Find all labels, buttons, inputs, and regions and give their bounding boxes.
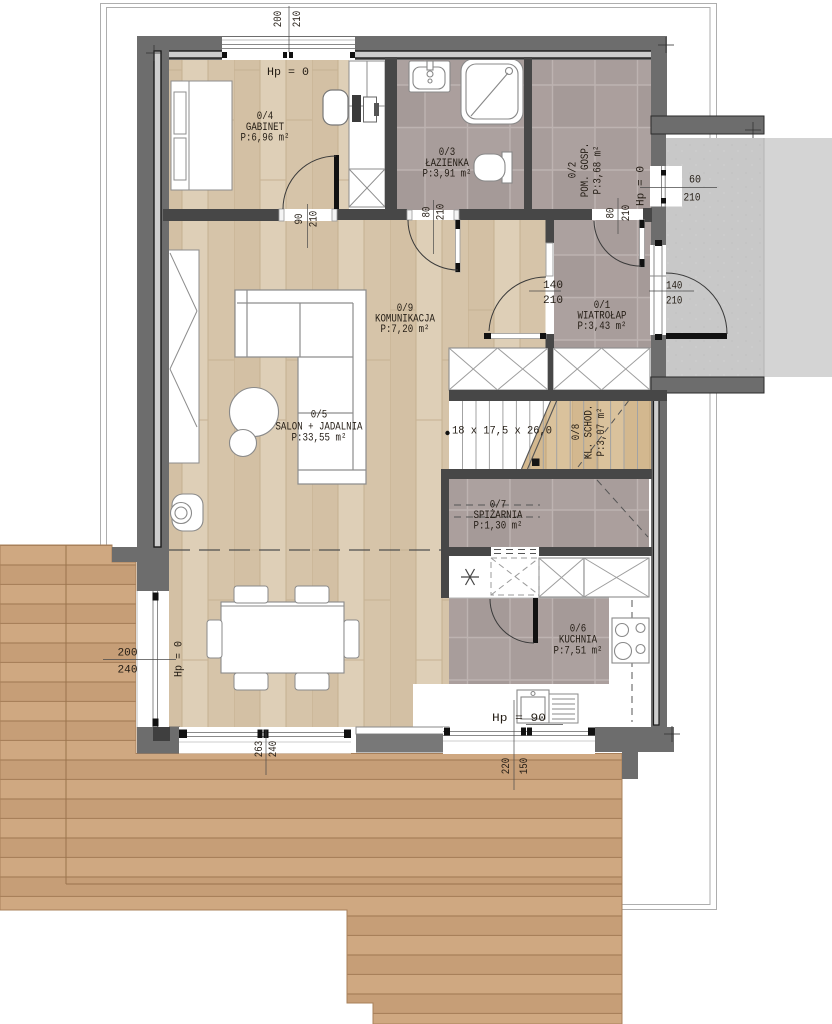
svg-text:240: 240 xyxy=(118,665,138,677)
svg-text:240: 240 xyxy=(268,741,280,757)
svg-text:Hp = 90: Hp = 90 xyxy=(492,713,546,725)
svg-text:P:7,51 m²: P:7,51 m² xyxy=(554,646,603,658)
svg-text:P:7,20 m²: P:7,20 m² xyxy=(381,324,430,336)
svg-text:POM. GOSP.: POM. GOSP. xyxy=(580,143,592,198)
svg-text:200: 200 xyxy=(273,11,285,27)
svg-text:80: 80 xyxy=(422,207,434,218)
svg-text:220: 220 xyxy=(501,758,513,774)
svg-text:210: 210 xyxy=(292,11,304,27)
svg-text:Hp = 0: Hp = 0 xyxy=(636,166,648,206)
svg-text:210: 210 xyxy=(309,211,321,227)
svg-text:150: 150 xyxy=(519,758,531,774)
svg-text:P:6,96 m²: P:6,96 m² xyxy=(241,133,290,145)
svg-text:18 x 17,5 x 26,0: 18 x 17,5 x 26,0 xyxy=(452,426,552,438)
svg-text:P:3,43 m²: P:3,43 m² xyxy=(578,321,627,333)
svg-text:P:3,07 m²: P:3,07 m² xyxy=(596,408,608,457)
svg-text:263: 263 xyxy=(254,741,266,757)
svg-text:210: 210 xyxy=(666,296,682,308)
svg-text:0/2: 0/2 xyxy=(568,162,580,178)
svg-text:Hp = 0: Hp = 0 xyxy=(267,67,309,79)
svg-text:90: 90 xyxy=(294,214,306,225)
svg-text:P:33,55 m²: P:33,55 m² xyxy=(292,433,347,445)
svg-text:80: 80 xyxy=(606,208,618,219)
svg-text:60: 60 xyxy=(689,175,701,187)
svg-text:0/8: 0/8 xyxy=(571,424,583,440)
svg-text:200: 200 xyxy=(118,648,138,660)
svg-text:0/5: 0/5 xyxy=(311,410,327,422)
svg-text:210: 210 xyxy=(621,205,633,221)
svg-text:210: 210 xyxy=(543,295,563,307)
svg-text:210: 210 xyxy=(684,193,701,205)
svg-text:P:3,91 m²: P:3,91 m² xyxy=(423,169,472,181)
svg-text:P:3,68 m²: P:3,68 m² xyxy=(593,146,605,195)
svg-text:KL. SCHOD.: KL. SCHOD. xyxy=(584,405,596,460)
svg-text:210: 210 xyxy=(436,204,448,220)
svg-text:P:1,30 m²: P:1,30 m² xyxy=(474,521,523,533)
svg-text:Hp = 0: Hp = 0 xyxy=(174,641,186,677)
svg-text:140: 140 xyxy=(543,280,563,292)
svg-text:140: 140 xyxy=(666,281,682,293)
